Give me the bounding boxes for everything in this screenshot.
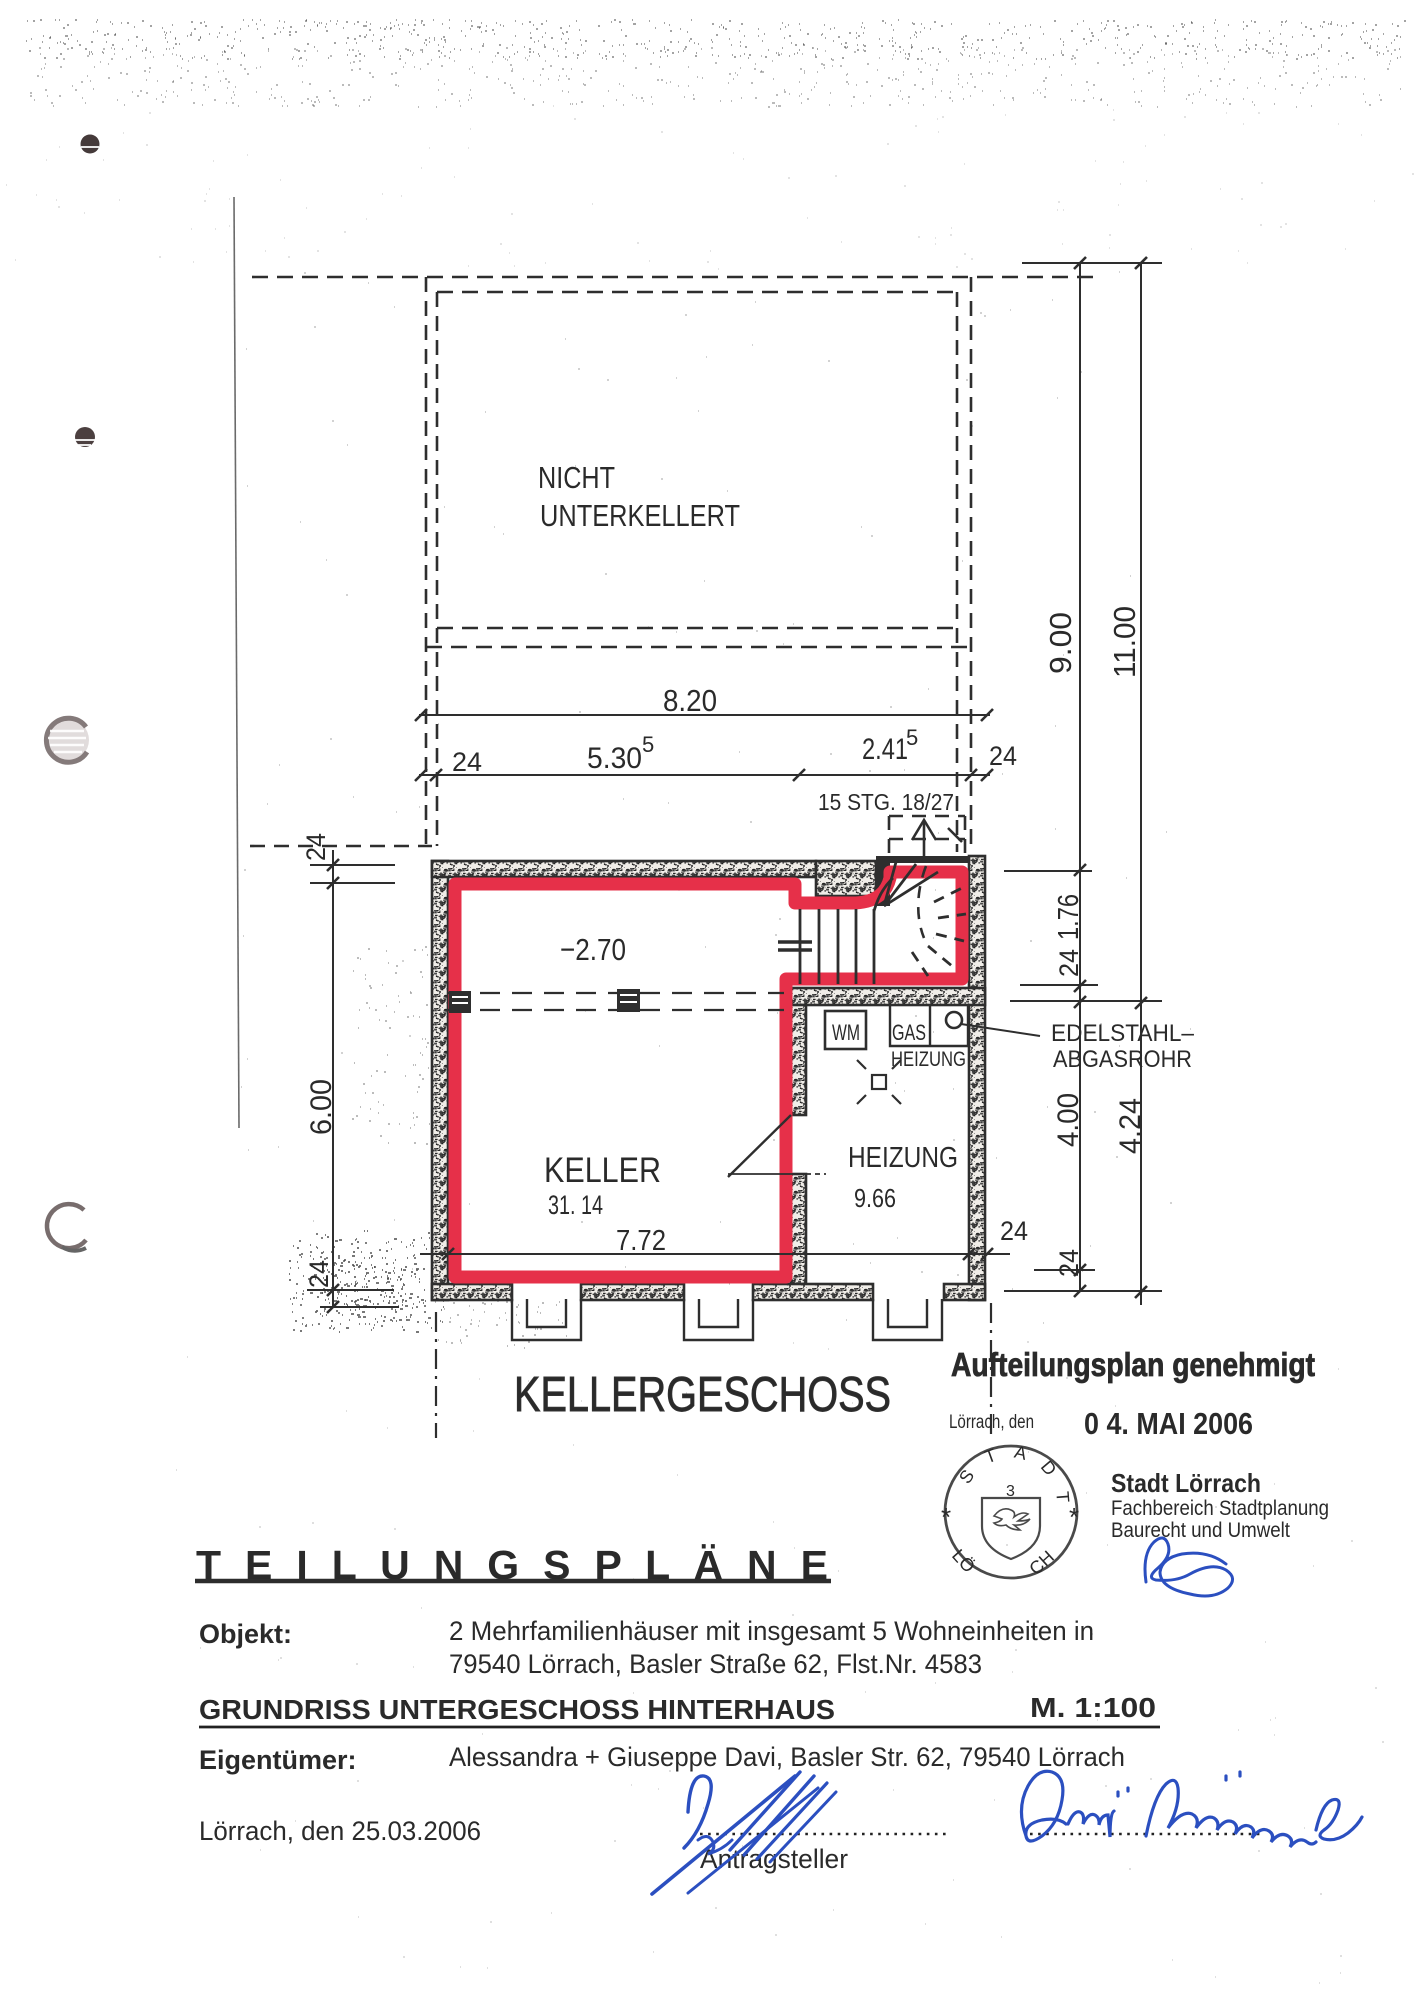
svg-text:Baurecht und Umwelt: Baurecht und Umwelt [1111, 1519, 1290, 1542]
svg-text:2.41: 2.41 [862, 733, 908, 766]
svg-text:4.24: 4.24 [1114, 1098, 1147, 1154]
svg-text:2 Mehrfamilienhäuser mit insge: 2 Mehrfamilienhäuser mit insgesamt 5 Woh… [449, 1616, 1094, 1646]
svg-text:HEIZUNG: HEIZUNG [891, 1048, 966, 1071]
svg-text:24: 24 [1054, 949, 1084, 977]
svg-text:Lörrach, den 25.03.2006: Lörrach, den 25.03.2006 [199, 1816, 481, 1846]
svg-text:9.66: 9.66 [854, 1183, 896, 1213]
svg-text:*: * [1069, 1502, 1079, 1532]
svg-text:5: 5 [906, 725, 918, 750]
svg-text:0 4. MAI 2006: 0 4. MAI 2006 [1084, 1406, 1253, 1441]
svg-text:*: * [941, 1502, 951, 1532]
svg-text:31. 14: 31. 14 [548, 1190, 603, 1220]
svg-text:Alessandra + Giuseppe Davi, Ba: Alessandra + Giuseppe Davi, Basler Str. … [449, 1742, 1125, 1772]
svg-text:GAS: GAS [892, 1020, 926, 1045]
svg-text:9.00: 9.00 [1043, 612, 1078, 674]
svg-text:HEIZUNG: HEIZUNG [848, 1142, 958, 1174]
svg-text:6.00: 6.00 [305, 1079, 338, 1135]
svg-text:24: 24 [1054, 1249, 1084, 1277]
svg-text:79540 Lörrach, Basler Straße 6: 79540 Lörrach, Basler Straße 62, Flst.Nr… [449, 1649, 982, 1679]
svg-text:KELLERGESCHOSS: KELLERGESCHOSS [514, 1368, 891, 1422]
svg-text:1.76: 1.76 [1053, 894, 1085, 940]
svg-text:−2.70: −2.70 [560, 932, 626, 967]
svg-text:M. 1:100: M. 1:100 [1030, 1692, 1156, 1723]
svg-text:5.30: 5.30 [587, 742, 642, 775]
svg-text:NICHT: NICHT [538, 460, 615, 495]
svg-text:Aufteilungsplan genehmigt: Aufteilungsplan genehmigt [951, 1346, 1315, 1383]
svg-text:15 STG. 18/27: 15 STG. 18/27 [818, 789, 954, 815]
svg-text:WM: WM [832, 1020, 860, 1045]
svg-text:4.00: 4.00 [1052, 1093, 1085, 1147]
svg-text:EDELSTAHL–: EDELSTAHL– [1051, 1020, 1195, 1047]
svg-text:5: 5 [642, 732, 654, 757]
svg-text:ABGASROHR: ABGASROHR [1053, 1046, 1192, 1073]
svg-text:11.00: 11.00 [1107, 606, 1142, 678]
svg-text:24: 24 [301, 833, 331, 861]
svg-text:24: 24 [989, 741, 1017, 771]
svg-text:Lörrach, den: Lörrach, den [949, 1412, 1034, 1433]
svg-text:KELLER: KELLER [544, 1151, 661, 1190]
svg-text:24: 24 [452, 747, 482, 777]
svg-text:Eigentümer:: Eigentümer: [199, 1745, 357, 1775]
svg-text:24: 24 [304, 1260, 334, 1288]
svg-text:8.20: 8.20 [663, 683, 717, 718]
svg-text:Objekt:: Objekt: [199, 1619, 292, 1649]
svg-text:24: 24 [1000, 1216, 1028, 1246]
svg-text:GRUNDRISS UNTERGESCHOSS HINTER: GRUNDRISS UNTERGESCHOSS HINTERHAUS [199, 1694, 835, 1725]
svg-text:Fachbereich Stadtplanung: Fachbereich Stadtplanung [1111, 1497, 1329, 1520]
svg-text:UNTERKELLERT: UNTERKELLERT [540, 498, 740, 533]
svg-text:Stadt Lörrach: Stadt Lörrach [1111, 1468, 1261, 1498]
svg-text:7.72: 7.72 [616, 1225, 666, 1257]
